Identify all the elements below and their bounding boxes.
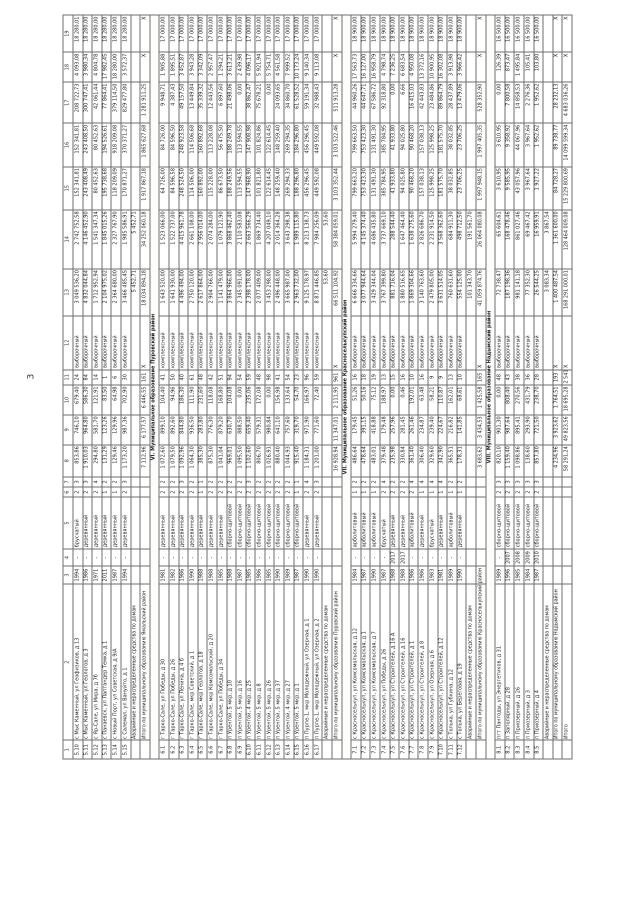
cell-col1: 6.12 <box>265 740 275 759</box>
cell-col16: 918 209,08 <box>111 123 121 166</box>
cell-col1: 6.13 <box>274 740 284 759</box>
cell-col14: 861 027,46 <box>514 210 524 269</box>
cell-col13: 3 077 944,64 <box>361 269 371 316</box>
building-row: 6.3г Тарко-Сале, ул Ленина, д 4 б1986-де… <box>179 15 189 759</box>
cell-col5: брусчатый <box>428 497 438 549</box>
cell-col17: 44 647,71 <box>361 82 371 123</box>
cell-col10: 94,96 <box>169 385 179 415</box>
cell-col18: 18 280,00 <box>111 52 121 82</box>
cell-col11: 16 <box>351 370 361 385</box>
cell-col13: 3 453 298,00 <box>265 269 275 316</box>
cell-col17: 7 800,58 <box>505 82 515 123</box>
cell-col4 <box>466 549 476 567</box>
cell-col19: 18 900,00 <box>390 15 400 52</box>
cell-col13: 6 666 334,66 <box>351 269 361 316</box>
cell-col18 <box>322 52 332 82</box>
cell-col11: 43 <box>505 370 515 385</box>
cell-col16: 131 491,30 <box>370 123 380 166</box>
cell-col6 <box>543 487 553 497</box>
building-row: 5.15с Салемал, ул Вануйто, д 11994-дерев… <box>121 15 131 759</box>
cell-col9: 844,80 <box>179 415 189 445</box>
cell-col7: 2 <box>265 477 275 487</box>
cell-col9: 892,60 <box>169 415 179 445</box>
cell-col17: 6 897,60 <box>217 82 227 123</box>
cell-col14: 2 327 767,90 <box>111 210 121 269</box>
cell-col6: 1 <box>428 487 438 497</box>
cell-col11: 48 <box>255 370 265 385</box>
cell-col16: 1 952,62 <box>534 123 544 166</box>
cell-col4: - <box>188 549 198 567</box>
cell-col14: 53,60 <box>322 210 332 269</box>
cell-col12: комплексный <box>246 316 256 370</box>
cell-col7: 3 <box>73 477 83 487</box>
cell-col6: 1 <box>457 487 467 497</box>
cell-col12: комплексный <box>217 316 227 370</box>
cell-col16: 80 452,63 <box>92 123 102 166</box>
cell-col7: 4 <box>438 477 448 487</box>
cell-col2: с Салемал, ул Вануйто, д 1 <box>121 584 131 741</box>
cell-col18: 3 980,34 <box>83 52 93 82</box>
cell-col13: 187 198,36 <box>505 269 515 316</box>
cell-col5: деревянный <box>188 497 198 549</box>
cell-col12: комплексный <box>265 316 275 370</box>
cell-col8: 365,51 <box>447 445 457 477</box>
cell-col10 <box>131 385 141 415</box>
cell-col11: 41 <box>274 370 284 385</box>
cell-col4 <box>131 549 141 567</box>
cell-col14: 1 985 586,91 <box>121 210 131 269</box>
cell-col1: 8.4 <box>524 740 534 759</box>
cell-col4: - <box>457 549 467 567</box>
cell-col5: деревянный <box>92 497 102 549</box>
cell-col2: с Красноселькуп, ул Строителей, д 16 <box>399 584 409 741</box>
cell-col5 <box>466 497 476 549</box>
cell-col18 <box>466 52 476 82</box>
cell-col4: - <box>313 549 323 567</box>
cell-col9: 3 434,53 <box>476 415 486 445</box>
cell-col10: 75,12 <box>370 385 380 415</box>
cell-col19: 17 000,00 <box>217 15 227 52</box>
cell-col6: 2 <box>255 487 265 497</box>
cell-col1 <box>140 740 150 759</box>
cell-col8: 8 <box>63 445 73 477</box>
cell-col13: 3 767 399,80 <box>380 269 390 316</box>
cell-col13: 1 643 520,00 <box>159 269 169 316</box>
cell-col13: 3 049 536,20 <box>73 269 83 316</box>
cell-col15 <box>322 167 332 210</box>
cell-col4: 2010 <box>534 549 544 567</box>
cell-col1 <box>476 740 486 759</box>
cell-col7: 3 <box>514 477 524 487</box>
cell-col12: выборочный <box>447 316 457 370</box>
cell-col16: 385 784,95 <box>380 123 390 166</box>
cell-col4: - <box>83 549 93 567</box>
cell-col13: 1 400 487,54 <box>553 269 563 316</box>
cell-col8 <box>543 445 553 477</box>
cell-col2: Аварийные и нераспределенные средства по… <box>543 584 553 741</box>
cell-col19: 17 000,00 <box>227 15 237 52</box>
cell-col2: г Тарко-Сале, ул Победы, д 26 <box>169 584 179 741</box>
cell-col5: сборно-щитовой <box>294 497 304 549</box>
cell-col19: X <box>476 15 486 52</box>
cell-col9: 11 347,01 <box>332 415 342 445</box>
cell-col18: X <box>562 52 572 82</box>
cell-col19: 17 000,00 <box>265 15 275 52</box>
cell-col16: 101 824,86 <box>255 123 265 166</box>
cell-col6: 2 <box>284 487 294 497</box>
cell-col17: 208 722,73 <box>73 82 83 123</box>
cell-col12: выборочный <box>83 316 93 370</box>
cell-col19: 18 280,01 <box>73 15 83 52</box>
cell-col8: 3 683,62 <box>476 445 486 477</box>
cell-col7: 1 <box>294 477 304 487</box>
cell-col16: 122 614,45 <box>265 123 275 166</box>
cell-col15: 753 423,30 <box>361 167 371 210</box>
cell-col14: 128 464 009,08 <box>562 210 572 269</box>
cell-col11: 54 <box>236 370 246 385</box>
cell-col8: 1 098,86 <box>514 445 524 477</box>
cell-col5: сборно-щитовой <box>274 497 284 549</box>
cell-col3: 1988 <box>399 566 409 584</box>
cell-col13: 2 077 409,00 <box>255 269 265 316</box>
cell-col19: 17 000,00 <box>284 15 294 52</box>
cell-col7: 2 <box>111 477 121 487</box>
cell-col11: 98 <box>265 370 275 385</box>
cell-col7 <box>131 477 141 487</box>
cell-col11: 84 <box>83 370 93 385</box>
cell-col15: 148 259,40 <box>274 167 284 210</box>
cell-col17: 23 484,86 <box>428 82 438 123</box>
cell-col4: 2008 <box>514 549 524 567</box>
cell-col11: 61 <box>188 370 198 385</box>
cell-col8: 16 928,94 <box>332 445 342 477</box>
cell-col6: 2 <box>217 487 227 497</box>
cell-col9: 49 823,56 <box>562 415 572 445</box>
cell-col12: выборочный <box>514 316 524 370</box>
cell-col15: 118 209,09 <box>111 167 121 210</box>
cell-col9: 579,31 <box>255 415 265 445</box>
cell-col2: п Уренгой, 5 мкр, д 8 <box>255 584 265 741</box>
cell-col14: 1 541 347,34 <box>92 210 102 269</box>
cell-col1: 8.2 <box>505 740 515 759</box>
cell-col3 <box>140 566 150 584</box>
cell-col11: 28 <box>534 370 544 385</box>
cell-col12: выборочный <box>399 316 409 370</box>
cell-col2: пгт Пангоды, ул Энергетиков, д 31 <box>495 584 505 741</box>
cell-col17 <box>543 82 553 123</box>
cell-col7: 4 <box>380 477 390 487</box>
cell-col3: 1990 <box>274 566 284 584</box>
cell-col13: 18 034 894,18 <box>140 269 150 316</box>
cell-col17: 379 114,50 <box>111 82 121 123</box>
cell-col4 <box>140 549 150 567</box>
cell-col9: 888,50 <box>236 415 246 445</box>
cell-col16: 23 706,25 <box>457 123 467 166</box>
cell-col5: брусчатый <box>73 497 83 549</box>
cell-col16: 84 596,50 <box>169 123 179 166</box>
cell-col3: 1983 <box>428 566 438 584</box>
cell-col15: 115 228,00 <box>207 167 217 210</box>
cell-col2: с Красноселькуп, ул Победы, д 26 <box>380 584 390 741</box>
cell-col7: 3 <box>534 477 544 487</box>
building-row: 8.5п Приозерный, д 419872010сборно-щитов… <box>534 15 544 759</box>
cell-col4: 4 <box>63 549 73 567</box>
cell-col18: 3 613,21 <box>227 52 237 82</box>
cell-col1: 6.8 <box>227 740 237 759</box>
cell-col3 <box>543 566 553 584</box>
cell-col8: 853,86 <box>73 445 83 477</box>
cell-col12: выборочный <box>409 316 419 370</box>
cell-col19: 16 500,00 <box>495 15 505 52</box>
cell-col10: 63,48 <box>418 385 428 415</box>
cell-col16: 370 371,27 <box>121 123 131 166</box>
building-row: 7.4с Красноселькуп, ул Победы, д 261987-… <box>380 15 390 759</box>
cell-col6: 2 <box>121 487 131 497</box>
cell-col4 <box>332 549 342 567</box>
cell-col1: 6.14 <box>284 740 294 759</box>
cell-col6: 2 <box>159 487 169 497</box>
cell-col17: 42 061,44 <box>92 82 102 123</box>
cell-col11: 165 <box>476 370 486 385</box>
cell-col15: 1 927,22 <box>534 167 544 210</box>
cell-col9: 987,36 <box>121 415 131 445</box>
cell-col18: 16 127,00 <box>361 52 371 82</box>
cell-col5: деревянный <box>390 497 400 549</box>
cell-col7: 3 <box>495 477 505 487</box>
cell-col6: 2 <box>83 487 93 497</box>
cell-col7: 2 <box>361 477 371 487</box>
cell-col11: 16 <box>418 370 428 385</box>
cell-col18: 2 957,47 <box>207 52 217 82</box>
cell-col19: 17 000,00 <box>274 15 284 52</box>
cell-col13: 3 140 763,60 <box>418 269 428 316</box>
cell-col18: 105,41 <box>524 52 534 82</box>
cell-col18: X <box>332 52 342 82</box>
cell-col15: 170 871,27 <box>121 167 131 210</box>
cell-col6: 1 <box>438 487 448 497</box>
cell-col2: г Тарко-Сале, ул Ленина, д 4 б <box>179 584 189 741</box>
cell-col16: 90 468,20 <box>409 123 419 166</box>
cell-col7: 2 <box>236 477 246 487</box>
cell-col10: 192,01 <box>409 385 419 415</box>
cell-col12: комплексный <box>188 316 198 370</box>
cell-col8: 820,10 <box>495 445 505 477</box>
cell-col4: - <box>236 549 246 567</box>
cell-col9: 901,30 <box>495 415 505 445</box>
cell-col3: 1985 <box>217 566 227 584</box>
cell-col16: 113 228,08 <box>207 123 217 166</box>
cell-col12 <box>322 316 332 370</box>
cell-col1: 8.1 <box>495 740 505 759</box>
cell-col11: 54 <box>284 370 294 385</box>
cell-col7 <box>543 477 553 487</box>
cell-col5: арболитовый <box>447 497 457 549</box>
cell-col10: 238,70 <box>534 385 544 415</box>
cell-col10: 54,70 <box>294 385 304 415</box>
cell-col6: 1 <box>111 487 121 497</box>
cell-col2: п Уренгой, 5 мкр, д 1 <box>294 584 304 741</box>
cell-col2: Аварийные и нераспределенные средства по… <box>466 584 476 741</box>
cell-col15: 114 506,00 <box>188 167 198 210</box>
cell-col18: 4 561,58 <box>274 52 284 82</box>
cell-col16: 125 998,25 <box>428 123 438 166</box>
cell-col14: 1 647 464,40 <box>399 210 409 269</box>
cell-col4: - <box>284 549 294 567</box>
cell-col14: 65 604,61 <box>495 210 505 269</box>
cell-col14: 4 415 961,78 <box>179 210 189 269</box>
cell-col7: 3 <box>505 477 515 487</box>
cell-col12: выборочный <box>524 316 534 370</box>
cell-col13: 26 544,25 <box>534 269 544 316</box>
cell-col16: 94 025,80 <box>399 123 409 166</box>
cell-col6 <box>322 487 332 497</box>
cell-col15: 64 726,00 <box>159 167 169 210</box>
cell-col1 <box>553 740 563 759</box>
cell-col2: Итого по муниципальному образованию Ямал… <box>140 584 150 741</box>
cell-col6 <box>562 487 572 497</box>
cell-col8: 1 184,31 <box>303 445 313 477</box>
cell-col5: деревянный <box>418 497 428 549</box>
cell-col10: 133,64 <box>284 385 294 415</box>
cell-col3: 1985 <box>246 566 256 584</box>
cell-col15: 152 341,81 <box>73 167 83 210</box>
cell-col11: 13 <box>447 370 457 385</box>
cell-col1: 6.6 <box>207 740 217 759</box>
cell-col2: г Тарко-Сале, мкр Советский, д 1 <box>188 584 198 741</box>
cell-col16 <box>131 123 141 166</box>
cell-col15: 147 968,90 <box>246 167 256 210</box>
cell-col1: 6.10 <box>246 740 256 759</box>
cell-col14: 168 478,46 <box>505 210 515 269</box>
cell-col10: 156,98 <box>274 385 284 415</box>
cell-col19: 17 000,00 <box>179 15 189 52</box>
cell-col14: 5 452,71 <box>131 210 141 269</box>
cell-col10: 270,56 <box>514 385 524 415</box>
cell-col11: 161 <box>140 370 150 385</box>
cell-col7: 3 <box>524 477 534 487</box>
cell-col3: 1989 <box>447 566 457 584</box>
cell-col12: выборочный <box>418 316 428 370</box>
cell-col17: 2 276,36 <box>524 82 534 123</box>
cell-col19: X <box>562 15 572 52</box>
cell-col1: 5.10 <box>73 740 83 759</box>
cell-col15: 43 057,96 <box>514 167 524 210</box>
cell-col19: 18 900,00 <box>370 15 380 52</box>
cell-col11: 10 <box>457 370 467 385</box>
cell-col12: выборочный <box>505 316 515 370</box>
cell-col19: 17 000,00 <box>169 15 179 52</box>
cell-col18: 1 895,51 <box>169 52 179 82</box>
cell-col3: 1986 <box>418 566 428 584</box>
cell-col11: 6 <box>111 370 121 385</box>
cell-col9 <box>131 415 141 445</box>
cell-col1: 1 <box>63 740 73 759</box>
cell-col17: 0,00 <box>495 82 505 123</box>
cell-col17: 77 864,41 <box>102 82 112 123</box>
cell-col9: 281,45 <box>399 415 409 445</box>
total-row: Итого по муниципальному образованию Ямал… <box>140 15 150 759</box>
cell-col2: п Пурпе-1, мкр Молодежный, ул Озерная, д… <box>303 584 313 741</box>
cell-col12: комплексный <box>179 316 189 370</box>
cell-col5: деревянный <box>169 497 179 549</box>
cell-col6: 2 <box>495 487 505 497</box>
cell-col1 <box>322 740 332 759</box>
cell-col13: 3 864 966,00 <box>227 269 237 316</box>
building-row: 6.9п Уренгой, 5 мкр, д 161987-сборно-щит… <box>236 15 246 759</box>
cell-col9 <box>322 415 332 445</box>
cell-col7: 3 <box>83 477 93 487</box>
cell-col15: 122 614,45 <box>265 167 275 210</box>
cell-col17: 0,00 <box>236 82 246 123</box>
cell-col4 <box>562 549 572 567</box>
cell-col17: 21 498,06 <box>227 82 237 123</box>
cell-col8: 235,98 <box>390 445 400 477</box>
cell-col7: 2 <box>188 477 198 487</box>
cell-col7: 3 <box>313 477 323 487</box>
cell-col19: 18 900,00 <box>418 15 428 52</box>
cell-col16: 44 067,96 <box>514 123 524 166</box>
cell-col3: 1986 <box>179 566 189 584</box>
cell-col2: п Приозерный, д 26 <box>514 584 524 741</box>
cell-col12: выборочный <box>361 316 371 370</box>
cell-col1 <box>562 740 572 759</box>
cell-col18: 3 913,98 <box>447 52 457 82</box>
cell-col1: 7.8 <box>418 740 428 759</box>
cell-col2: Аварийные и нераспределенные средства по… <box>131 584 141 741</box>
cell-col9 <box>543 415 553 445</box>
cell-col17: 34 860,70 <box>284 82 294 123</box>
cell-col3: 1994 <box>121 566 131 584</box>
cell-col3: 1982 <box>169 566 179 584</box>
cell-col18: 3 452,87 <box>179 52 189 82</box>
cell-col16: 3 610,95 <box>495 123 505 166</box>
cell-col10: 118,08 <box>207 385 217 415</box>
cell-col2: с Красноселькуп, ул Строителей, д 12 <box>438 584 448 741</box>
cell-col16: 9 358,92 <box>505 123 515 166</box>
cell-col4: - <box>303 549 313 567</box>
cell-col17: 13 449,84 <box>188 82 198 123</box>
cell-col8: 880,40 <box>274 445 284 477</box>
cell-col17 <box>466 82 476 123</box>
cell-col9: 391,15 <box>361 415 371 445</box>
cell-col7: 4 <box>92 477 102 487</box>
cell-col11 <box>131 370 141 385</box>
cell-col16: 3 103 522,46 <box>332 123 342 166</box>
cell-col9: 293,90 <box>524 415 534 445</box>
cell-col9: 3 923,62 <box>553 415 563 445</box>
cell-col3: 1996 <box>505 566 515 584</box>
cell-col13: 2 104 975,02 <box>102 269 112 316</box>
cell-col17: 59 191,34 <box>303 82 313 123</box>
cell-col12 <box>131 316 141 370</box>
cell-col15: 456 296,45 <box>303 167 313 210</box>
cell-col5: деревянный <box>303 497 313 549</box>
cell-col2: г Тарко-Сале, мкр Комсомольский, д 20 <box>207 584 217 741</box>
cell-col13: 72 738,47 <box>495 269 505 316</box>
cell-col18: 17 982,45 <box>102 52 112 82</box>
cell-col6: 2 <box>265 487 275 497</box>
page-number: 3 <box>27 374 37 380</box>
cell-col2: г Тарко-Сале, ул Победы, д 30 <box>159 584 169 741</box>
building-row: 7.7с Красноселькуп, ул Строителей, д 119… <box>409 15 419 759</box>
cell-col3: 1985 <box>514 566 524 584</box>
cell-col15: 188 249,56 <box>227 167 237 210</box>
cell-col17: 1 281 911,25 <box>140 82 150 123</box>
cell-col19: 18 280,00 <box>92 15 102 52</box>
cell-col17: 0,00 <box>265 82 275 123</box>
cell-col3: 1987 <box>236 566 246 584</box>
cell-col8: 1 201,00 <box>313 445 323 477</box>
